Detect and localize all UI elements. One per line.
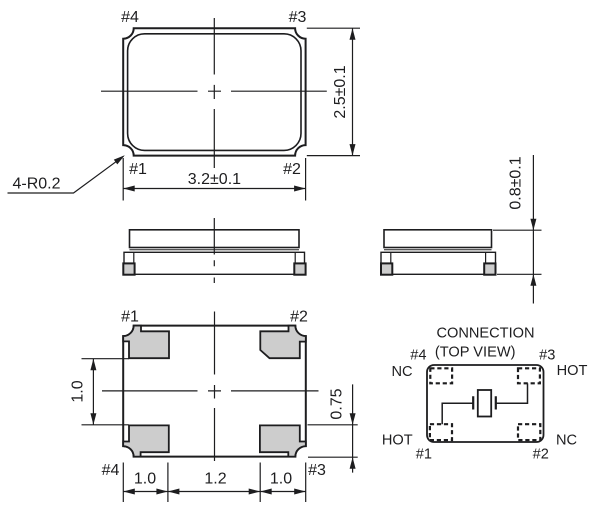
svg-text:4-R0.2: 4-R0.2 [12,176,60,193]
svg-text:1.2: 1.2 [204,471,226,488]
svg-text:#2: #2 [533,447,549,463]
svg-text:HOT: HOT [557,363,588,379]
svg-text:1.0: 1.0 [134,471,156,488]
svg-text:#2: #2 [290,309,308,326]
svg-text:#1: #1 [416,447,432,463]
svg-text:CONNECTION: CONNECTION [436,326,534,342]
svg-text:NC: NC [391,364,412,380]
svg-text:0.75: 0.75 [329,388,346,419]
svg-text:#4: #4 [410,348,426,364]
svg-text:NC: NC [556,432,577,448]
svg-text:#2: #2 [283,161,301,178]
svg-text:#1: #1 [121,309,139,326]
svg-text:(TOP VIEW): (TOP VIEW) [435,345,516,361]
svg-text:1.0: 1.0 [270,471,292,488]
svg-text:3.2±0.1: 3.2±0.1 [188,171,241,188]
svg-text:#4: #4 [121,9,139,26]
svg-text:#3: #3 [539,348,555,364]
svg-text:0.8±0.1: 0.8±0.1 [508,156,525,209]
svg-text:#3: #3 [308,462,326,479]
svg-text:#3: #3 [289,9,307,26]
svg-text:#4: #4 [102,462,120,479]
svg-text:1.0: 1.0 [70,380,87,402]
svg-text:HOT: HOT [382,432,413,448]
svg-text:#1: #1 [129,161,147,178]
svg-text:2.5±0.1: 2.5±0.1 [332,65,349,118]
